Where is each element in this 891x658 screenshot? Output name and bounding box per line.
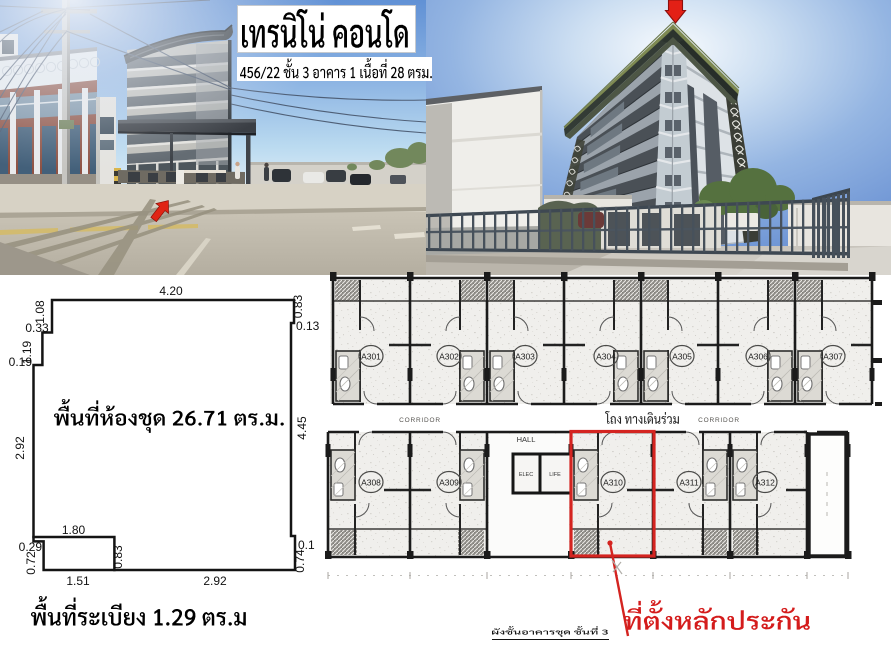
- svg-text:CORRIDOR: CORRIDOR: [399, 417, 441, 424]
- svg-text:2.92: 2.92: [203, 574, 227, 588]
- svg-text:ELEC: ELEC: [519, 472, 533, 478]
- svg-text:1.51: 1.51: [66, 574, 90, 588]
- svg-text:A307: A307: [823, 352, 843, 362]
- svg-text:A305: A305: [672, 352, 692, 362]
- svg-text:0.74: 0.74: [293, 549, 307, 573]
- svg-text:0.19: 0.19: [9, 355, 33, 369]
- svg-text:A303: A303: [515, 352, 535, 362]
- svg-text:0.83: 0.83: [111, 545, 125, 569]
- svg-text:A304: A304: [596, 352, 616, 362]
- svg-text:A312: A312: [755, 478, 775, 488]
- svg-text:A308: A308: [361, 478, 381, 488]
- svg-text:1.80: 1.80: [62, 523, 86, 537]
- svg-text:A306: A306: [748, 352, 768, 362]
- svg-text:0.83: 0.83: [291, 294, 305, 318]
- svg-text:0.72: 0.72: [24, 551, 38, 575]
- svg-text:0.13: 0.13: [296, 319, 320, 333]
- svg-text:A302: A302: [439, 352, 459, 362]
- svg-text:LIFE: LIFE: [549, 472, 561, 478]
- svg-text:4.45: 4.45: [295, 416, 309, 440]
- svg-text:A301: A301: [361, 352, 381, 362]
- svg-text:CORRIDOR: CORRIDOR: [698, 417, 740, 424]
- svg-text:4.20: 4.20: [159, 284, 183, 298]
- svg-text:A310: A310: [603, 478, 623, 488]
- svg-text:2.92: 2.92: [13, 436, 27, 460]
- svg-text:HALL: HALL: [517, 435, 536, 444]
- svg-text:0.33: 0.33: [25, 321, 49, 335]
- svg-text:A309: A309: [439, 478, 459, 488]
- svg-text:A311: A311: [679, 478, 698, 488]
